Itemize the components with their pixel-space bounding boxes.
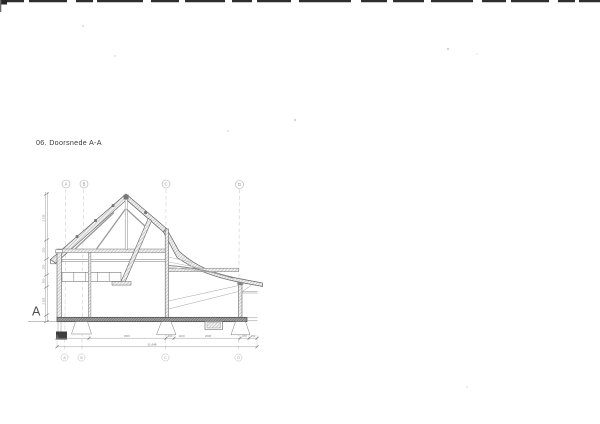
scan-speck <box>447 48 449 50</box>
dim-extension-lines <box>57 335 257 348</box>
post-c <box>165 229 168 318</box>
bottom-dimensions: 3515 400 1100 2630 970 250 11.048 <box>56 334 259 348</box>
section-marker-label: A <box>32 305 41 319</box>
dim-value: 400 <box>168 334 173 338</box>
main-roof <box>51 194 167 264</box>
king-post <box>125 200 127 250</box>
lower-roof-band <box>164 229 263 287</box>
dim-value: 2.935 <box>42 297 46 304</box>
footing-pad <box>231 322 250 335</box>
grid-bubble-bottom-a-label: A <box>63 356 66 360</box>
grid-bubble-top-c-label: C <box>164 182 167 187</box>
purlin-block <box>144 211 147 214</box>
grid-bubble-bottom-c-label: C <box>164 356 167 360</box>
dim-value: 2.735 <box>42 214 46 221</box>
wall-top-cap <box>56 250 63 253</box>
tie-beam <box>57 249 168 253</box>
scanned-drawing-sheet: 06. Doorsnede A-A A B C D A B C D <box>0 0 600 424</box>
ceiling-foot-ledge <box>112 282 131 286</box>
grid-bubble-bottom-b-label: B <box>80 356 83 360</box>
grid-bubble-bottom-d-label: D <box>237 356 240 360</box>
dim-value: 970 <box>242 334 247 338</box>
eave-brace <box>243 286 251 292</box>
footing-pad <box>72 322 92 334</box>
ceiling-panel-band <box>62 272 121 281</box>
scan-speck <box>466 386 467 387</box>
ridge-beam <box>124 195 129 200</box>
scan-speck <box>82 25 84 27</box>
section-drawing-canvas: 06. Doorsnede A-A A B C D A B C D <box>0 0 600 424</box>
post-d-cap <box>237 282 243 284</box>
truss-strut <box>75 213 114 250</box>
dim-value: 1100 <box>178 334 184 338</box>
floor-slab <box>28 317 258 329</box>
scan-speck <box>476 53 477 54</box>
grid-bubble-top-a-label: A <box>65 182 68 187</box>
grid-bubble-top-b-label: B <box>83 182 86 187</box>
long-brace <box>169 286 239 302</box>
drawing-title: 06. Doorsnede A-A <box>36 138 102 147</box>
dim-value: 250 <box>251 334 256 338</box>
purlin-block <box>112 204 115 207</box>
footing-pad <box>157 322 177 335</box>
dim-value: 2630 <box>205 334 212 338</box>
scan-speck <box>114 55 115 56</box>
building-section <box>28 194 263 340</box>
dim-value: 3515 <box>124 334 131 338</box>
slab <box>57 317 247 321</box>
dim-value: 300 <box>42 278 46 283</box>
interior-post <box>88 253 91 318</box>
grid-bubble-top-d-label: D <box>238 182 241 187</box>
left-dimension-line: 2.735 250 250 300 2.935 <box>42 192 49 323</box>
lower-chord <box>62 259 166 261</box>
scan-speck <box>294 119 296 121</box>
dim-value: 250 <box>42 247 46 252</box>
left-wall <box>57 253 62 318</box>
recess-fill <box>207 323 221 329</box>
scan-speck <box>227 130 228 131</box>
scan-left-edge <box>0 0 1 12</box>
purlin-block <box>76 235 79 238</box>
panel-band <box>62 272 121 281</box>
dim-value: 250 <box>42 264 46 269</box>
post-d <box>239 285 242 318</box>
grid-line-a <box>65 190 66 352</box>
long-brace <box>169 292 239 310</box>
dim-total-value: 11.048 <box>148 343 157 347</box>
purlin-block <box>94 219 97 222</box>
lower-roof <box>164 229 263 287</box>
